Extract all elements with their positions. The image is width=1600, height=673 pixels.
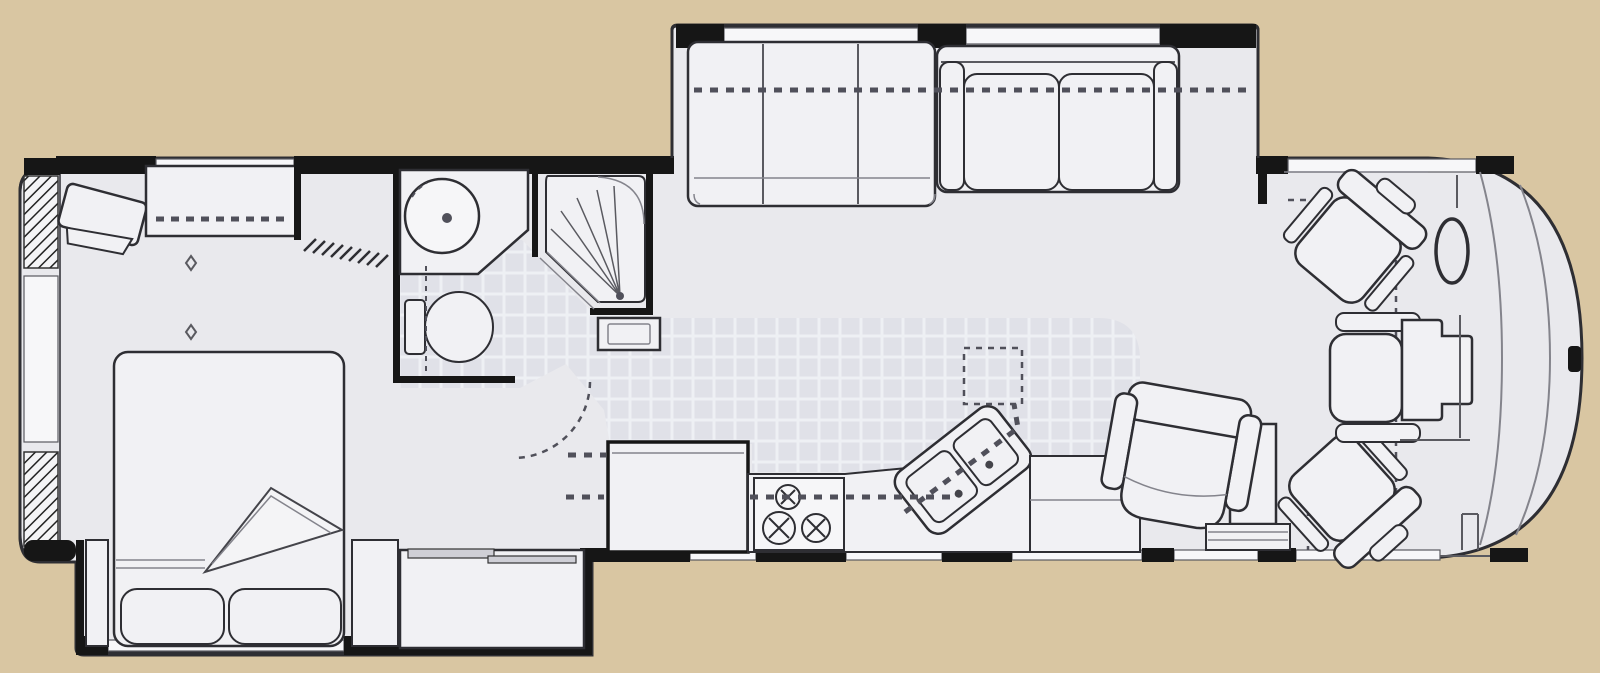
step-cabinet: [1206, 524, 1290, 550]
floorplan-canvas: [0, 0, 1600, 673]
bath-wall: [393, 376, 515, 383]
rear-window: [24, 276, 58, 442]
shower-wall: [532, 163, 538, 257]
three-cushion-sofa: [937, 46, 1179, 192]
wall-segment: [1476, 156, 1514, 174]
wall-segment: [56, 156, 156, 174]
sliding-door: [488, 556, 576, 563]
faucet-dot: [442, 213, 452, 223]
nightstand-right: [352, 540, 398, 646]
shower-wall: [646, 163, 653, 315]
living-window: [1288, 159, 1476, 172]
range-cooktop: [754, 478, 844, 550]
refrigerator: [608, 442, 748, 552]
shower-wall: [590, 308, 653, 315]
queen-bed: [114, 352, 344, 646]
living-window: [1174, 550, 1258, 560]
toilet: [405, 292, 493, 362]
floorplan-page: [0, 0, 1600, 673]
pillow: [229, 589, 341, 644]
rear-wall-hatch-bottom: [24, 452, 58, 546]
bedroom-bath-wall: [294, 163, 301, 240]
pillow: [121, 589, 224, 644]
dresser: [146, 166, 296, 236]
sofa-slideout: [672, 24, 1258, 206]
wall-stub: [1258, 158, 1267, 204]
nightstand-left: [86, 540, 108, 646]
wardrobe-closet: [400, 549, 584, 648]
jackknife-sofa: [688, 42, 935, 206]
sliding-door: [408, 549, 494, 558]
rear-bottom-corner-wall: [24, 540, 76, 561]
slideout-window: [966, 28, 1160, 44]
front-cap-marker: [1568, 346, 1581, 372]
slideout-wall-cap: [1160, 24, 1256, 48]
shower-cabinet: [598, 318, 660, 350]
rear-wall-hatch-top: [24, 176, 58, 268]
round-sink: [405, 179, 479, 253]
rear-top-corner-wall: [24, 158, 60, 175]
